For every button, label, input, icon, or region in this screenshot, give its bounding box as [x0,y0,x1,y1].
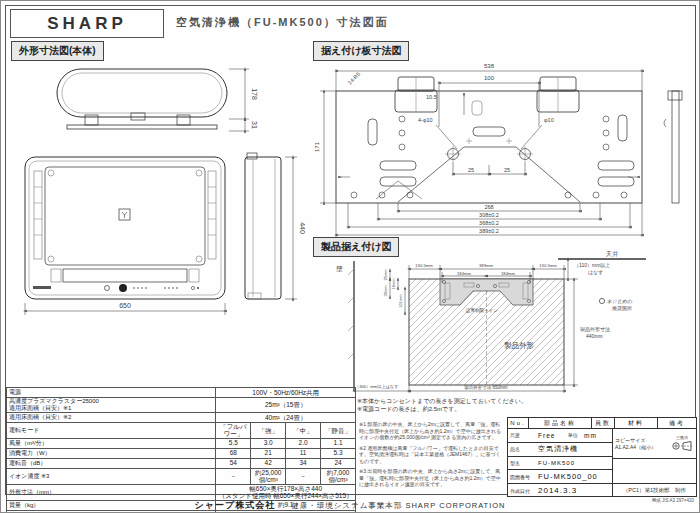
dim-width-650: 650 [119,302,131,309]
label-gap-110-line2: はなす [588,269,603,276]
date-label: 作成日付 [508,488,538,494]
copy-size-value: A1.A2.A4（縮小） [615,444,656,450]
sharp-logo: SHARP [47,14,127,34]
document-title: 空気清浄機（FU-MK500）寸法図面 [176,15,389,30]
product-name-value: 空気清浄機 [538,444,612,454]
table-row: 消費電力（W）6821115.3 [7,448,356,458]
dim-30mm: 30mm [383,285,388,297]
label-height-dim1: 製品外形寸法 [580,326,610,333]
install-drawing-svg: 壁 天井 設置制限ライン 製品外形 [306,249,698,397]
header-remarks: 備考 [658,418,696,428]
scale-value: Free [538,432,566,439]
label-limit-line: 設置制限ライン [466,307,498,314]
drawing-number-row: 図面番号 FU-MK500_00 [508,470,612,484]
table-row: イオン濃度 ※3－約25,000個/cm³－約7,000個/cm³ [7,468,356,484]
table-row: 風量（m³/分）5.53.02.01.1 [7,438,356,448]
dim-plate-538: 538 [484,63,495,69]
model-row: 型名 FU-MK500 [508,457,612,471]
drawing-number-value: FU-MK500_00 [538,472,612,481]
dim-25mm: 25mm [383,269,388,281]
drawing-sheet: SHARP 空気清浄機（FU-MK500）寸法図面 外形寸法図(本体) 据え付け… [0,0,700,513]
department-cell: （PC1）第1技術部 制作 [613,484,696,497]
model-label: 型名 [508,460,538,466]
label-product-outline: 製品外形 [504,341,535,350]
spec-table: 電源100V・50Hz/60Hz共用 高濃度プラズマクラスター25000 適用床… [6,387,356,513]
scale-row: 尺度 Free 単位 mm [508,429,612,443]
dim-184-right: 184mm [501,271,515,276]
plate-dimensions: 538 100 25 25 171 268 308±0.2 [314,63,642,237]
table-row: 適用床面積（目安）※240m²（24畳） [7,412,356,422]
sheet-footer: シャープ株式会社 健康・環境システム事業本部 SHARP CORPORATION [1,499,699,512]
label-width-650: 製品外形寸法 650mm [464,384,508,390]
side-view: 440 [245,153,305,299]
reference-notes: ※1 部屋の床の中央、床上から2mに設置して、風量「強」運転時に部屋中央付近（床… [359,421,505,492]
division-name: 健康・環境システム事業本部 SHARP CORPORATION [291,501,505,511]
table-row: 外形寸法（mm）幅650×奥行178×高さ440 （スタンド使用時 幅650×奥… [7,484,356,500]
label-screw-note1: ネジ止めの [607,298,632,304]
scale-label: 尺度 [508,432,538,438]
model-value: FU-MK500 [538,460,612,466]
label-corner-radius: 14-R5 [346,71,361,86]
label-edge-10-5: 10.5 [426,94,437,100]
dim-184-left: 184mm [457,271,471,276]
dim-101mm: 101mm [398,294,403,308]
ref-note-3: ※3 出荷時を部屋の床の中央、床上から高さ2mに設置して、風量「強」運転時に部屋… [359,468,505,488]
label-ceiling: 天井 [606,251,619,257]
copy-size-text: コピーサイズA1.A2.A4（縮小） [615,437,656,450]
dim-plate-171: 171 [314,141,320,152]
label-height-dim2: 440mm [586,333,603,339]
copy-size-cell: コピーサイズA1.A2.A4（縮小） 三角法 [613,429,696,459]
company-name: シャープ株式会社 [195,499,276,512]
dim-16mm: 16mm [391,278,396,290]
dim-130-5-left: 130.5mm [415,263,433,268]
install-note-2: ※電源コードの長さは、約2.5mです。 [357,405,547,413]
date-value: 2014.3.3 [538,486,612,495]
dim-389: 389mm [479,263,493,268]
dim-plate-389: 389±0.2 [479,228,499,234]
table-row: 運転モード「フルパワー」「強」「中」「静音」 [7,422,356,438]
install-notes: ※本体からコンセントまでの長さを測定しておいてください。 ※電源コードの長さは、… [357,397,547,413]
header-no: No. [508,418,529,428]
header-qty: 員数 [592,418,615,428]
outline-drawing-svg: 178 31 [7,57,305,387]
label-hole-4phi10: 4-φ10 [418,117,433,123]
install-product: 設置制限ライン 製品外形 [409,279,564,385]
title-block-right: コピーサイズA1.A2.A4（縮小） 三角法 （PC1）第1技術部 制作 [613,429,696,497]
projection-block: 三角法 [670,435,694,452]
dim-plate-368: 368±0.2 [479,220,499,226]
table-row: 電源100V・50Hz/60Hz共用 [7,388,356,398]
header-part-name: 部品名称 [529,418,592,428]
title-block: No. 部品名称 員数 材料 備考 尺度 Free 単位 mm 品名 空気清浄機… [507,417,697,497]
drawing-number-label: 図面番号 [508,474,538,480]
front-view: 650 [25,157,225,315]
third-angle-projection-icon [670,440,694,452]
copy-size-label: コピーサイズ [615,437,646,443]
table-row: 運転音（dB）54423424 [7,458,356,468]
plate-side-profile [664,91,682,203]
product-name-label: 品名 [508,446,538,452]
top-view: 178 31 [57,69,258,131]
dim-plate-308: 308±0.2 [479,212,499,218]
product-name-row: 品名 空気清浄機 [508,443,612,457]
dim-foot-31: 31 [251,121,258,129]
unit-label: 単位 [566,432,584,438]
paper-size-note: 用紙 JIS A3 297×420 [652,498,694,503]
install-note-1: ※本体からコンセントまでの長さを測定しておいてください。 [357,397,547,405]
unit-value: mm [584,432,612,439]
table-row: 高濃度プラズマクラスター25000 適用床面積（目安）※125m²（15畳） [7,398,356,413]
title-block-header: No. 部品名称 員数 材料 備考 [508,418,696,429]
label-gap-110-line1: （110）mm以上 [574,262,610,268]
ref-note-1: ※1 部屋の床の中央、床上から2mに設置して、風量「強」運転時に部屋中央付近（床… [359,421,505,441]
dim-130-5-right: 130.5mm [539,263,557,268]
label-wall: 壁 [336,265,343,272]
plate-body: 4-φ10 φ10 14-R5 10.5 [336,71,642,203]
plate-drawing-svg: 4-φ10 φ10 14-R5 10.5 [306,57,698,243]
dim-pitch-25b: 25 [504,167,510,173]
dim-depth-178: 178 [251,88,258,100]
label-gap-300: （300）mm以上はなす [355,384,399,390]
dim-height-440: 440 [299,222,305,234]
dim-plate-100: 100 [484,75,495,81]
sharp-logo-box: SHARP [10,9,164,38]
ref-note-2: ※2 適用床面積は風量「フルパワー」で運転したときの目安です。空気清浄運転時は「… [359,445,505,465]
title-block-empty-cell [613,459,696,484]
title-block-left: 尺度 Free 単位 mm 品名 空気清浄機 型名 FU-MK500 図面番号 … [508,429,613,497]
dim-pitch-25a: 25 [468,167,474,173]
header-material: 材料 [615,418,658,428]
label-screw-note2: 推奨箇所 [612,305,632,311]
date-row: 作成日付 2014.3.3 [508,484,612,497]
dim-plate-268: 268 [484,204,493,210]
label-hole-phi10: φ10 [544,117,554,123]
